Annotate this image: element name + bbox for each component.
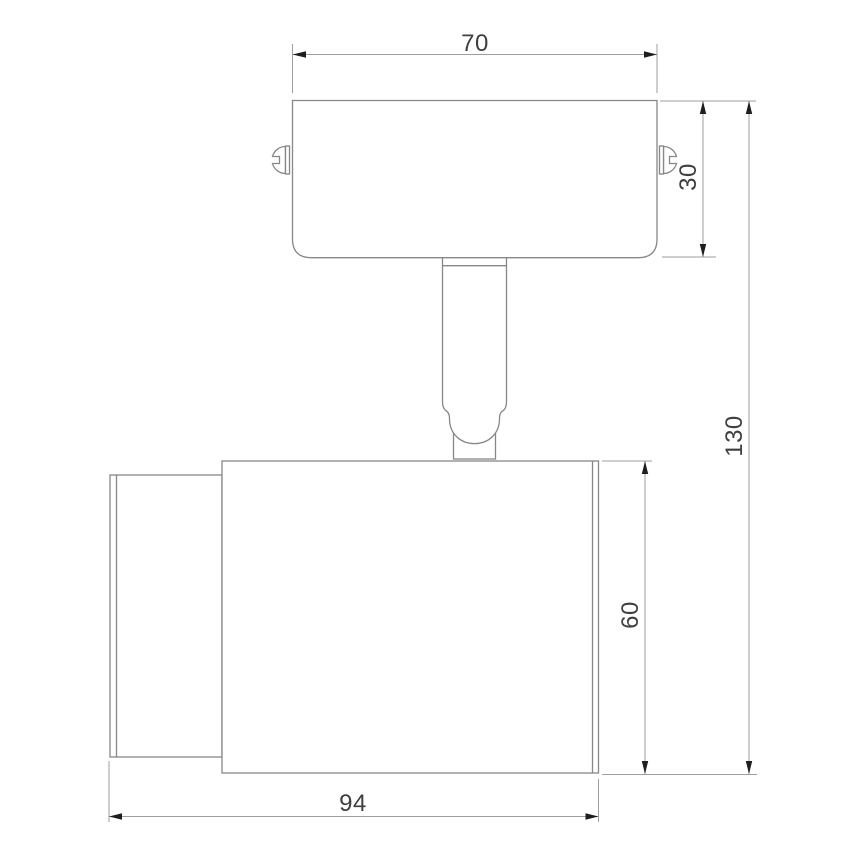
- arrowhead-down: [746, 761, 752, 774]
- dim-label-bracket-width: 70: [461, 30, 489, 57]
- technical-drawing-canvas: 70 30 130 60 94: [0, 0, 864, 864]
- arrowhead-up: [746, 101, 752, 114]
- lamp-body: [222, 461, 599, 773]
- stem-assembly: [443, 258, 507, 459]
- arrowhead-down: [700, 244, 706, 257]
- dim-overall-height: 130: [721, 101, 752, 774]
- screw-head: [273, 147, 286, 174]
- right-screw: [660, 146, 677, 174]
- bracket-plate: [293, 101, 658, 258]
- arrowhead-left: [293, 51, 307, 57]
- dim-label-body-length: 94: [339, 790, 367, 817]
- screw-flange: [660, 146, 664, 174]
- stem-tube: [443, 258, 507, 444]
- dim-bracket-width: 70: [293, 30, 658, 93]
- dim-label-bracket-height: 30: [675, 163, 702, 191]
- mounting-bracket: [273, 101, 677, 258]
- dim-label-overall-height: 130: [721, 415, 748, 457]
- arrowhead-right: [586, 813, 599, 819]
- dim-bracket-height: 30: [660, 101, 756, 257]
- spotlight-dimension-drawing: 70 30 130 60 94: [0, 0, 864, 864]
- dim-body-height: 60: [602, 461, 757, 775]
- dim-label-body-height: 60: [617, 601, 644, 629]
- arrowhead-right: [644, 51, 657, 57]
- front-bezel: [110, 475, 222, 757]
- arrowhead-up: [700, 101, 706, 114]
- arrowhead-down: [642, 761, 648, 774]
- arrowhead-left: [109, 813, 122, 819]
- arrowhead-up: [642, 461, 648, 474]
- lamp-head: [110, 461, 599, 773]
- left-screw: [273, 146, 290, 174]
- screw-flange: [286, 146, 290, 174]
